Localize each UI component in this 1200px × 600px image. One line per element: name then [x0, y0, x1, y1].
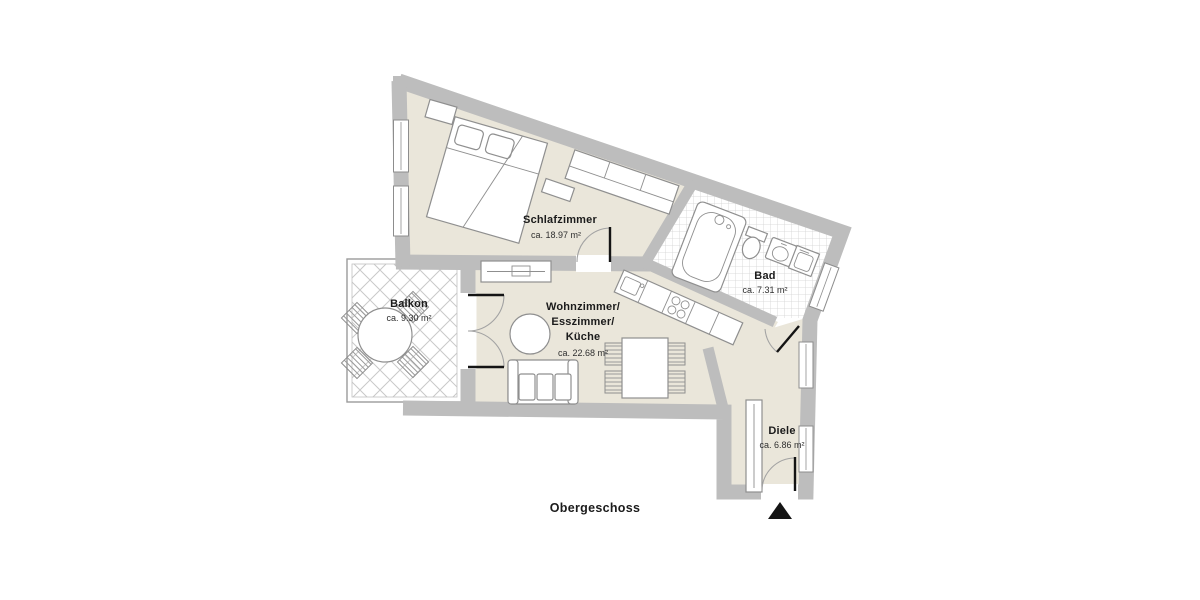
wall-corner-patch	[393, 76, 406, 90]
dining-chair	[605, 371, 623, 393]
window	[394, 186, 409, 236]
floor-plan-page: Schlafzimmer ca. 18.97 m² Bad ca. 7.31 m…	[0, 0, 1200, 600]
diele-label: Diele	[768, 425, 795, 437]
sofa-armrest	[508, 360, 518, 404]
sideboard	[481, 261, 551, 282]
sofa-cushion	[537, 374, 553, 400]
floor-title: Obergeschoss	[550, 501, 640, 515]
sofa-cushion	[555, 374, 571, 400]
sofa-cushion	[519, 374, 535, 400]
round-table	[510, 314, 550, 354]
dining-chair	[667, 371, 685, 393]
wohnzimmer-label-line3: Küche	[566, 331, 601, 343]
diele-area: ca. 6.86 m²	[759, 440, 804, 450]
schlafzimmer-label: Schlafzimmer	[523, 214, 597, 226]
wohnzimmer-area: ca. 22.68 m²	[558, 348, 608, 358]
bad-label: Bad	[754, 270, 775, 282]
window	[394, 120, 409, 172]
dining-chair	[667, 343, 685, 365]
floor-plan-drawing: Schlafzimmer ca. 18.97 m² Bad ca. 7.31 m…	[0, 0, 1200, 600]
window	[799, 342, 813, 388]
bedroom-door-opening	[576, 255, 611, 272]
bad-area: ca. 7.31 m²	[742, 285, 787, 295]
schlafzimmer-area: ca. 18.97 m²	[531, 230, 581, 240]
balkon-label: Balkon	[390, 298, 428, 310]
balcony	[341, 259, 462, 402]
wohnzimmer-label-line2: Esszimmer/	[551, 316, 614, 328]
sofa	[508, 360, 578, 404]
entrance-door-opening	[761, 484, 798, 500]
entrance-arrow-icon	[768, 502, 792, 519]
exterior-wall-bedroom-west	[399, 81, 403, 266]
dining-table	[622, 338, 668, 398]
wohnzimmer-label-line1: Wohnzimmer/	[546, 301, 620, 313]
balkon-area: ca. 9.30 m²	[386, 313, 431, 323]
